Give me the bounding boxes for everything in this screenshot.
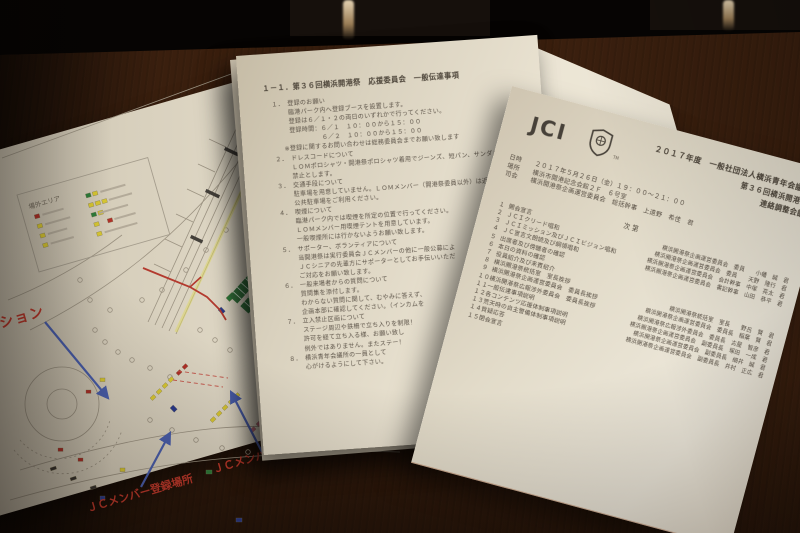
chair-leg-highlight bbox=[343, 0, 354, 40]
jci-shield-icon bbox=[585, 126, 615, 159]
jci-logo: JCI bbox=[528, 113, 570, 146]
photo-of-documents-on-table: 場外エリア bbox=[0, 0, 800, 533]
jci-trademark: TM bbox=[612, 155, 619, 161]
chair-silhouette bbox=[290, 0, 490, 36]
chair-leg-highlight bbox=[723, 0, 734, 31]
